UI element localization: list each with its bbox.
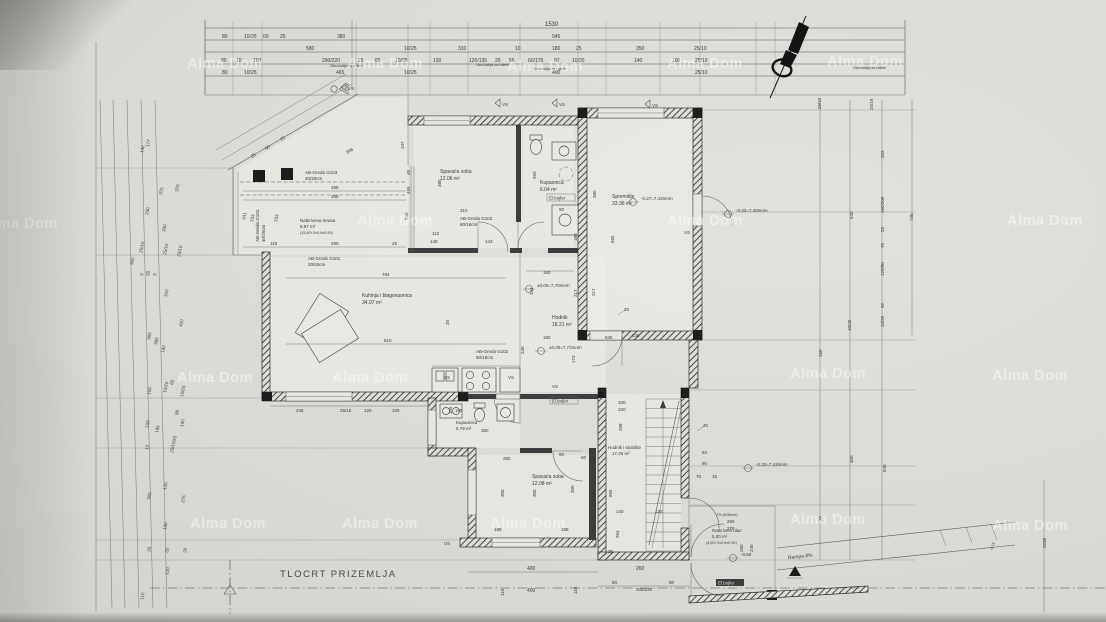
slope-label: 7% (5/30cm) (716, 513, 738, 517)
dim-label: (15,82+2x0,9x0,90) (300, 231, 334, 235)
dim-label: 80/18cm (460, 222, 478, 227)
dim-label: 217 (573, 289, 578, 297)
vs-marker: VS (508, 375, 514, 380)
dim-label: 173 (571, 355, 576, 363)
drawing-element (531, 140, 542, 155)
dim-label: 12.06 m² (440, 176, 460, 182)
dim-label: 90 (559, 452, 565, 457)
shower-icon (552, 205, 578, 235)
dim-label: 177 (145, 138, 152, 147)
dim-label: 40 (406, 169, 411, 175)
drawing-element (281, 168, 293, 180)
dim-label: 140 (616, 509, 624, 514)
dim-label: 240 (520, 346, 525, 354)
drawing-element (141, 100, 153, 608)
dim-label: 468 (331, 185, 339, 190)
dim-label: 120/90 (880, 262, 885, 276)
dim-label: 12.08 m² (532, 481, 552, 487)
vs-marker: VS (495, 99, 508, 107)
drawing-element (598, 388, 606, 560)
dim-label: 300 (570, 485, 575, 493)
dim-label: Natkrivena terasa (300, 218, 336, 223)
vs-marker: VS (444, 375, 450, 380)
right-dimension-chain: 25/10 25/10 253 645 100/200 735 25 75 12… (817, 97, 1047, 612)
dim-label: 290 (331, 241, 339, 246)
dim-label: 380 (437, 179, 442, 187)
drawing-element (552, 99, 557, 107)
dim-label: 310 (163, 288, 170, 297)
drawing-element (155, 100, 167, 608)
watermark: Alma Dom (357, 213, 433, 229)
dim-label: 80 (669, 580, 675, 585)
dim-label: 2638 (1042, 537, 1047, 548)
drawing-element (127, 100, 139, 608)
drawing-element (408, 248, 478, 253)
drawing-element (466, 382, 473, 389)
dim-label: 380 (592, 190, 597, 198)
dim-label: 140 (430, 239, 438, 244)
dim-label: 10 (515, 46, 521, 52)
drawing-element (482, 382, 489, 389)
dim-label: 645 (849, 211, 854, 219)
dim-label: 65 (145, 270, 151, 276)
watermark: Alma Dom (790, 512, 866, 528)
dim-label: 25/10 (817, 97, 822, 109)
dim-label: 300 (532, 489, 537, 497)
dim-label: 143 (485, 239, 493, 244)
dim-label: 217 (591, 288, 596, 296)
dim-label: 945 (552, 34, 561, 40)
dim-label: 185 (154, 424, 161, 433)
dim-label: El.bojler (552, 399, 569, 404)
watermark: Alma Dom (190, 516, 266, 532)
dim-label: 160 (160, 344, 167, 353)
dim-label: VS (348, 86, 354, 91)
dim-label: 80/18cm (476, 355, 494, 360)
dim-label: 120 (655, 509, 663, 514)
drawing-element (253, 170, 265, 182)
drawing-element (559, 146, 569, 156)
dim-label: 15 (712, 474, 718, 479)
drawing-element (262, 392, 272, 401)
dim-label: Z1 (703, 423, 709, 428)
drawing-element (501, 408, 511, 418)
drawing-element (482, 371, 489, 378)
dim-label: 5 (139, 272, 145, 276)
drawing-element (520, 448, 552, 453)
dim-label: 230 (144, 206, 151, 215)
toilet2-icon (474, 403, 485, 422)
dim-label: 580 (306, 46, 315, 52)
dim-label: 20/20cm (308, 262, 326, 267)
dim-label: 83 (702, 450, 708, 455)
drawing-element (559, 214, 571, 226)
z1-marker: Z1 (697, 423, 709, 431)
dim-label: 8.97 m² (300, 224, 316, 229)
dim-label: 735 (909, 213, 914, 221)
scanned-floor-plan-sheet: 1530 8010/25 6025 380945 58010/25 31010 … (0, 0, 1106, 622)
drawing-element (606, 394, 681, 552)
drawing-element (495, 99, 500, 107)
dim-label: 250 (503, 456, 511, 461)
dim-label: 110 (500, 588, 505, 596)
watermark: Alma Dom (790, 366, 866, 382)
dim-label: 20 (182, 547, 188, 553)
photo-left-shade (0, 0, 90, 622)
drawing-element (428, 410, 436, 445)
dim-label: Z1 (624, 307, 630, 312)
left-dimension-chain: 142 177 375 375 230 330 900 25/10 25/10 … (96, 42, 188, 612)
dim-label: 10/25 (244, 34, 257, 40)
dim-label: 60 (581, 455, 587, 460)
dim-label: 20 (445, 319, 450, 325)
dim-label: 25/10 (694, 46, 707, 52)
dim-label: 25/10 (176, 245, 183, 258)
dim-label: 112 (432, 231, 440, 236)
dim-label: AB-Greda G102 (476, 349, 509, 354)
dim-label: Kupaonica (456, 420, 478, 425)
vs-marker: VS (598, 388, 604, 393)
dim-label: 360 (146, 331, 153, 340)
dim-label: 25/10/25 (169, 435, 178, 454)
vs-marker: VS (444, 541, 450, 546)
drawing-element (100, 100, 112, 608)
drawing-element (693, 108, 702, 118)
dim-label: 5,00 m² (712, 534, 728, 539)
dim-label: 330 (161, 223, 168, 232)
dim-label: 60 (169, 379, 175, 385)
vs-marker: VS (645, 100, 658, 108)
dim-label: 110 (573, 586, 578, 594)
drawing-element (548, 248, 582, 253)
dim-label: 400 (527, 566, 536, 572)
toilet-icon (530, 135, 542, 155)
dim-label: ±0,00=7,70mnm (537, 283, 570, 288)
dim-label: Z1 (608, 549, 614, 554)
washer-icon (497, 404, 514, 421)
dim-label: 253 (880, 150, 885, 158)
room-label-entrance: Natkriveni ulaz 5,00 m² (4,50+2x0,9x0,90… (706, 528, 742, 545)
dim-label: 5.79 m² (456, 426, 472, 431)
dim-label: 100 (618, 400, 626, 405)
level-marker: -0,32=7,43mnm (742, 462, 788, 472)
dim-label: 245 (296, 408, 304, 413)
dim-label: Kuhinja i blagovaonica (362, 293, 412, 299)
dim-label: VS (559, 102, 565, 107)
dim-label: 180 (543, 335, 551, 340)
drawing-element (458, 392, 468, 401)
dim-label: 240 (749, 544, 754, 552)
dim-label: 80 (174, 409, 180, 415)
dim-label: 220 (618, 407, 626, 412)
sink-icon (552, 142, 576, 160)
dim-label: 5 (152, 272, 158, 276)
dim-label: 17.26 m² (612, 451, 630, 456)
dim-label: 250 (727, 519, 735, 524)
drawing-element (516, 125, 521, 222)
dim-label: 260 (636, 566, 645, 572)
dim-label: 900 (129, 256, 136, 265)
dim-label: 810 (384, 338, 392, 343)
dim-label: 92 (880, 302, 885, 308)
dim-label: 70 (696, 474, 702, 479)
dim-label: 350 (636, 46, 645, 52)
dim-label: 465 (336, 70, 345, 76)
dim-label: 268 (618, 423, 623, 431)
dim-label: 40/20cm (305, 176, 323, 181)
vs-marker: VS (552, 384, 558, 389)
watermark: Alma Dom (347, 56, 423, 72)
dim-label: VS (684, 230, 690, 235)
dim-label: 264 (615, 530, 620, 538)
dim-label: Spavaća soba (440, 169, 472, 175)
dim-label: 300 (146, 491, 153, 500)
drawing-element (436, 371, 444, 381)
dim-label: 165 (448, 406, 453, 414)
dim-label: 165 (455, 408, 463, 413)
dim-label: 25 (392, 241, 398, 246)
dim-label: 10/25 (847, 319, 852, 331)
dim-label: VS (508, 375, 514, 380)
dim-label: 90 (559, 207, 565, 212)
dim-label: 34.07 m² (362, 300, 382, 306)
drawing-element (689, 586, 868, 603)
dim-label: 100 (392, 408, 400, 413)
dim-label: Hodnik i stubište (608, 445, 642, 450)
dim-label: 120 (162, 481, 169, 490)
drawing-element (468, 394, 598, 399)
dim-label: 25 (880, 226, 885, 232)
dim-label: 130 (433, 58, 442, 64)
dim-label: VS (598, 388, 604, 393)
dim-label: ±0,00=7,72mnm (549, 345, 582, 350)
dim-label: 375 (174, 183, 181, 192)
dim-label: 25/10 (340, 408, 352, 413)
dim-label: 380 (337, 34, 346, 40)
dim-label: 150 (146, 386, 153, 395)
drawing-element (331, 86, 337, 92)
dim-label: 310 (460, 208, 468, 213)
dim-label: 10/25 (179, 385, 186, 398)
dim-label: VS (444, 541, 450, 546)
photo-bottom-shadow (0, 612, 1106, 622)
dim-label: VS (502, 102, 508, 107)
watermark: Alma Dom (342, 516, 418, 532)
dim-label: 18.21 m² (552, 322, 572, 328)
drawing-element (262, 252, 270, 400)
dim-label: 375 (158, 186, 165, 195)
dim-label: 110 (139, 592, 145, 601)
dim-label: VS (652, 103, 658, 108)
watermark: Alma Dom (490, 516, 566, 532)
dim-label: 260 (532, 171, 537, 179)
dim-label: 260 (739, 544, 744, 552)
dim-label: Hodnik (552, 315, 568, 321)
dim-label: 120 (164, 566, 171, 575)
boiler-label: El.bojler (716, 579, 744, 586)
dim-label: 420 (178, 318, 185, 327)
drawing-element (496, 394, 520, 399)
dim-label: 275 (180, 494, 187, 503)
dim-label: 1530 (545, 22, 559, 28)
dim-label: 180 (552, 46, 561, 52)
dim-label: 25 (576, 46, 582, 52)
dim-label: (4,50+2x0,9x0,90) (706, 541, 737, 545)
dim-label: 130 (162, 521, 169, 530)
dim-label: 10/25 (162, 381, 169, 394)
dim-label: AB-Greda G104 (255, 209, 260, 242)
dim-label: 385 (153, 336, 160, 345)
dim-label: 20 (164, 547, 170, 553)
dim-label: 137 (400, 141, 405, 149)
watermark: Alma Dom (177, 370, 253, 386)
drawing-element (578, 330, 587, 340)
watermark: Alma Dom (187, 56, 263, 72)
dim-label: 840 (882, 464, 887, 472)
dim-label: 535 (605, 335, 613, 340)
dim-label: 10/25 (880, 315, 885, 327)
dim-label: 160 (818, 349, 823, 357)
dim-label: 25/10 (869, 98, 874, 110)
dim-label: 100/200 (880, 196, 885, 213)
drawing-element (681, 388, 689, 398)
dim-label: Kupaonica (540, 180, 564, 186)
dim-label: 665 (610, 235, 615, 243)
dim-label: VS (552, 384, 558, 389)
watermark: Alma Dom (667, 213, 743, 229)
drawing-element (466, 371, 473, 378)
dim-label: 455 (406, 186, 411, 194)
drawing-element (788, 22, 809, 54)
dim-label: 75 (880, 242, 885, 248)
dim-label: 140 (634, 58, 643, 64)
dim-label: El.bojler (549, 196, 566, 201)
dim-label: 335 (632, 333, 640, 338)
door-arc (689, 498, 719, 528)
dim-label: AB-Grede G101 (308, 256, 341, 261)
watermark: Alma Dom (992, 518, 1068, 534)
dim-label: 300 (500, 489, 505, 497)
dim-label: El.bojler (718, 581, 735, 586)
dim-label: -0,27=7,43mnm (641, 196, 673, 201)
dim-label: Okn-kutija za rolete (476, 63, 509, 67)
drawing-element (578, 108, 587, 118)
drawing-element (940, 530, 946, 546)
dim-label: 20 (146, 546, 152, 552)
dim-label: 180 (543, 270, 551, 275)
watermark: Alma Dom (992, 368, 1068, 384)
watermark: Alma Dom (1007, 213, 1083, 229)
dim-label: 80 (222, 34, 228, 40)
dim-label: 10/25 (404, 46, 417, 52)
dim-label: 120 (364, 408, 372, 413)
drawing-element (681, 388, 689, 498)
dim-label: 144 (529, 287, 534, 295)
ramp-level-label: -0,15 (989, 542, 996, 552)
drawing-element (474, 403, 485, 408)
drawing-element (689, 340, 698, 388)
dim-label: AB-Greda G102 (460, 216, 493, 221)
drawing-element (966, 527, 972, 543)
vs-marker: VS (552, 99, 565, 107)
drawing-element (693, 330, 702, 340)
dim-label: Spavaća soba (532, 474, 564, 480)
dim-label: AB-Greda G103 (305, 170, 338, 175)
vs-marker: VS (684, 230, 690, 235)
dim-label: 25/10 (162, 243, 169, 256)
dim-label: VS (444, 375, 450, 380)
dim-label: 160 (179, 418, 186, 427)
dim-label: 400 (527, 588, 536, 594)
drawing-element (645, 100, 650, 108)
dim-label: 60 (263, 34, 269, 40)
drawing-element (468, 470, 476, 515)
watermark: Alma Dom (507, 59, 583, 75)
dim-label: 80 (612, 580, 618, 585)
dim-label: -0,32=7,43mnm (756, 462, 788, 467)
dim-label: 180 (573, 233, 578, 241)
dim-label: 784 (382, 272, 390, 277)
dim-label: 468 (331, 194, 339, 199)
floor-plan-drawing: 1530 8010/25 6025 380945 58010/25 31010 … (0, 0, 1106, 622)
dim-label: 150 (144, 419, 151, 428)
dim-label: 270 (727, 526, 735, 531)
ramp (777, 522, 1015, 578)
watermark: Alma Dom (332, 370, 408, 386)
dim-label: 116 (270, 241, 278, 246)
dim-label: 90 (702, 461, 708, 466)
dim-label: 40/20cm (261, 224, 266, 242)
dim-label: 25 (280, 34, 286, 40)
dim-label: 350 (481, 428, 489, 433)
drawing-element (113, 100, 125, 608)
dim-label: 310 (458, 46, 467, 52)
drawing-element (578, 108, 587, 340)
drawing-title: TLOCRT PRIZEMLJA (280, 569, 397, 580)
watermark: Alma Dom (667, 56, 743, 72)
dim-label: 6.04 m² (540, 187, 557, 193)
dim-label: 665 (608, 489, 613, 497)
dim-label: 460 (849, 455, 854, 463)
drawing-element (589, 448, 596, 540)
watermark: Alma Dom (827, 54, 903, 70)
fridge-icon (500, 368, 520, 392)
